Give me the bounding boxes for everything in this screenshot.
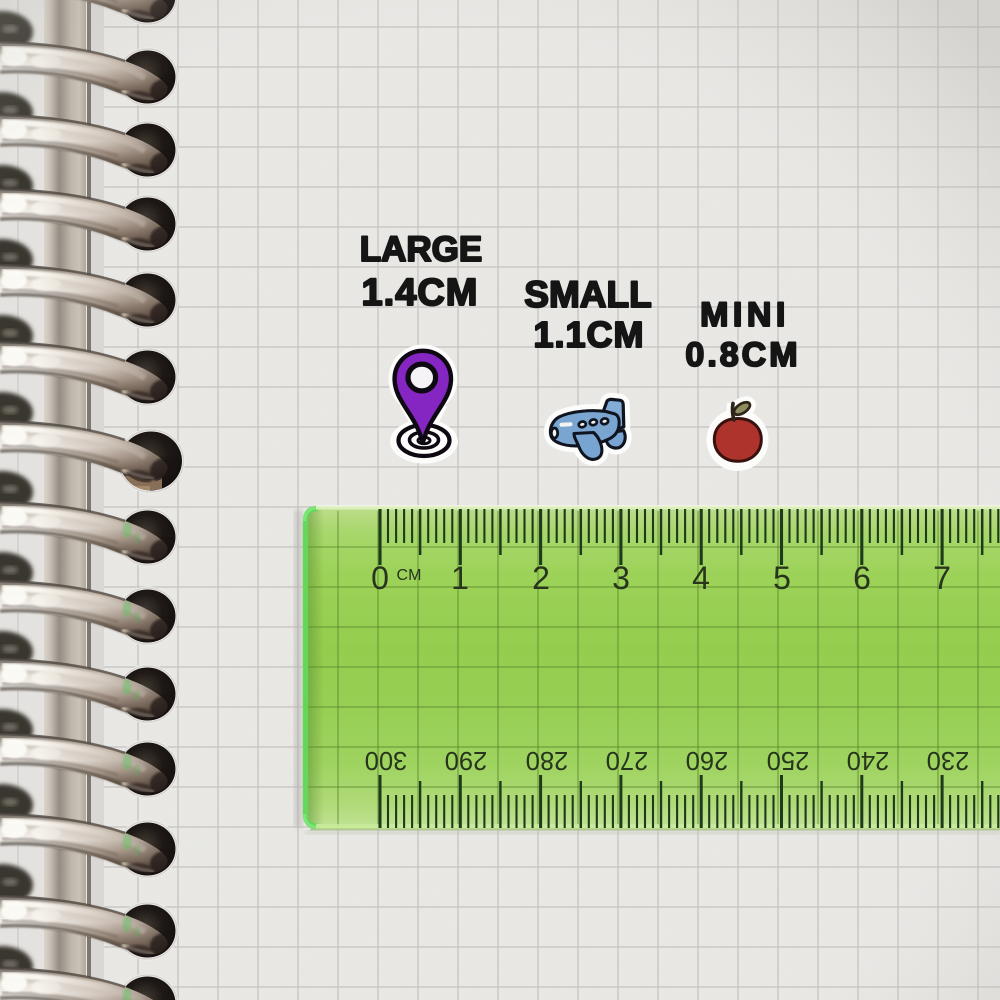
svg-text:290: 290 — [445, 746, 488, 774]
svg-text:230: 230 — [927, 746, 970, 774]
svg-text:7: 7 — [933, 560, 951, 596]
svg-text:CM: CM — [397, 567, 422, 584]
svg-text:1: 1 — [451, 560, 469, 596]
svg-text:280: 280 — [526, 746, 569, 774]
svg-text:0.8CM: 0.8CM — [685, 336, 800, 374]
svg-text:1.1CM: 1.1CM — [533, 314, 644, 355]
svg-text:240: 240 — [847, 746, 890, 774]
svg-text:1.4CM: 1.4CM — [362, 272, 479, 314]
svg-text:MINI: MINI — [700, 296, 790, 334]
svg-text:SMALL: SMALL — [524, 274, 651, 315]
svg-text:LARGE: LARGE — [360, 230, 483, 269]
svg-text:260: 260 — [686, 746, 729, 774]
svg-text:250: 250 — [767, 746, 810, 774]
svg-text:300: 300 — [365, 746, 408, 774]
svg-text:2: 2 — [532, 560, 550, 596]
svg-text:270: 270 — [606, 746, 649, 774]
svg-text:5: 5 — [773, 560, 791, 596]
svg-text:3: 3 — [612, 560, 630, 596]
svg-text:4: 4 — [692, 560, 710, 596]
svg-text:0: 0 — [371, 560, 389, 596]
svg-text:6: 6 — [853, 560, 871, 596]
